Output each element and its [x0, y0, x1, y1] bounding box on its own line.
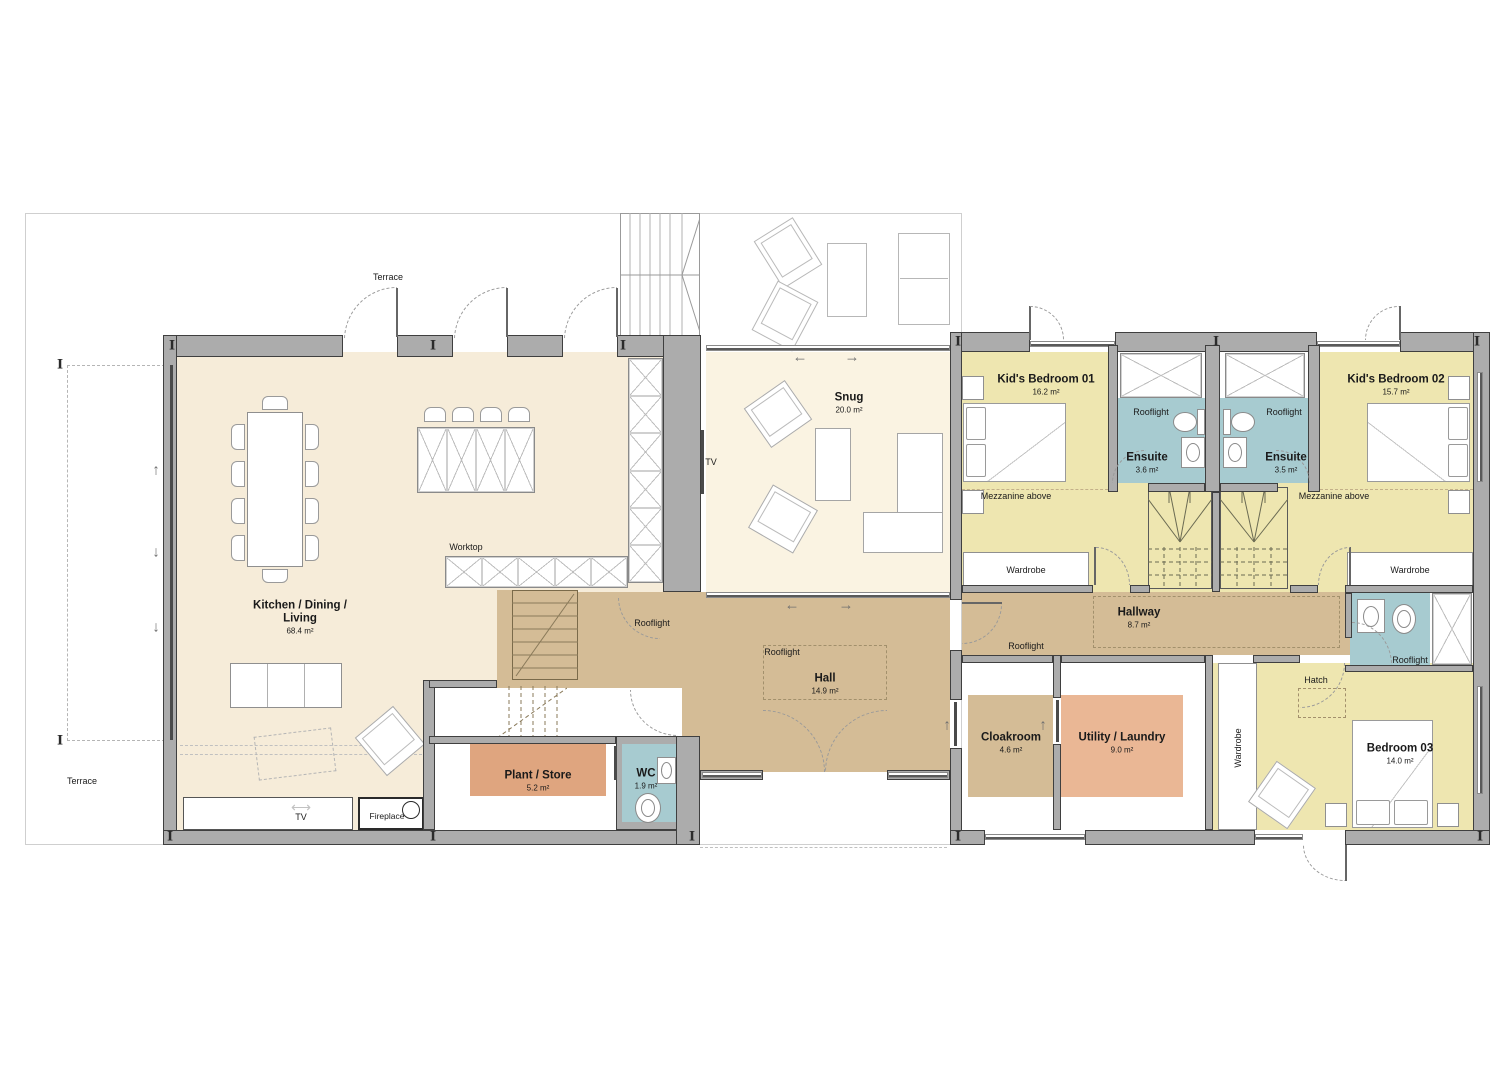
- cistern-ensuite-02: [1223, 409, 1231, 435]
- room-area: 1.9 m²: [635, 782, 658, 791]
- mezzanine-label-01: Mezzanine above: [981, 491, 1052, 501]
- pillow: [1394, 800, 1428, 825]
- bedside-shelf: [1325, 803, 1347, 827]
- room-label-snug: Snug 20.0 m²: [835, 391, 864, 414]
- wall: [1085, 830, 1255, 845]
- wall: [1212, 492, 1220, 592]
- hatch-label: Hatch: [1304, 675, 1328, 685]
- section-marker: I: [169, 340, 175, 353]
- slide-arrow-up: ↑: [152, 463, 160, 478]
- bedroom-01-window: [1030, 341, 1115, 347]
- room-area: 3.5 m²: [1265, 466, 1307, 475]
- bedroom-02-east-window: [1477, 372, 1483, 482]
- tv-label-snug: TV: [705, 457, 717, 467]
- floor-plan: ⟷: [0, 0, 1512, 1080]
- terrace-sofa: [898, 233, 950, 325]
- dining-chair: [305, 498, 319, 524]
- utility-pocket-door: [1056, 700, 1059, 742]
- basin-ensuite-01: [1181, 437, 1205, 468]
- worktop-horizontal: [445, 556, 628, 588]
- dining-table: [247, 412, 303, 567]
- basin-ensuite-02: [1223, 437, 1247, 468]
- dining-chair: [231, 535, 245, 561]
- room-name: Plant / Store: [504, 769, 571, 782]
- room-area: 68.4 m²: [238, 627, 362, 636]
- room-area: 20.0 m²: [835, 406, 864, 415]
- wall: [507, 335, 563, 357]
- section-marker: I: [955, 831, 961, 844]
- entrance-side-window: [888, 772, 948, 778]
- wardrobe-label-03: Wardrobe: [1233, 728, 1243, 767]
- wall: [429, 736, 616, 744]
- section-marker: I: [430, 831, 436, 844]
- worktop-vertical: [628, 358, 663, 583]
- pillow: [966, 407, 986, 440]
- room-name: WC: [635, 767, 658, 780]
- main-stair: [512, 590, 578, 680]
- fireplace-flue: [402, 801, 420, 819]
- terrace-table: [827, 243, 867, 317]
- slide-arrow-left: ←: [785, 598, 800, 613]
- wall: [1345, 830, 1490, 845]
- wall: [163, 335, 343, 357]
- room-area: 3.6 m²: [1126, 466, 1168, 475]
- cistern-ensuite-01: [1197, 409, 1205, 435]
- door-swing: [1303, 845, 1345, 881]
- dining-chair: [305, 424, 319, 450]
- room-area: 16.2 m²: [997, 388, 1094, 397]
- wall: [423, 680, 435, 830]
- door-swing: [1030, 306, 1064, 340]
- toilet-bathroom-03: [1392, 604, 1416, 634]
- room-label-bedroom-03: Bedroom 03 14.0 m²: [1367, 742, 1433, 765]
- wall: [1061, 655, 1205, 663]
- section-marker: I: [620, 340, 626, 353]
- room-label-kids-bedroom-01: Kid's Bedroom 01 16.2 m²: [997, 373, 1094, 396]
- section-marker: I: [955, 336, 961, 349]
- wall: [1053, 744, 1061, 830]
- fireplace-label: Fireplace: [370, 811, 405, 821]
- entrance-door-swing-left: [763, 710, 825, 772]
- section-marker: I: [57, 735, 63, 748]
- dining-chair: [231, 424, 245, 450]
- door-swing: [454, 287, 507, 340]
- room-label-ensuite-01: Ensuite 3.6 m²: [1126, 451, 1168, 474]
- bedroom-02-window: [1317, 341, 1400, 347]
- slide-arrow-right: →: [839, 598, 854, 613]
- mezzanine-stair-2: [1220, 487, 1288, 589]
- tv-label-living: TV: [295, 812, 307, 822]
- section-marker: I: [1477, 831, 1483, 844]
- toilet-wc: [635, 793, 661, 823]
- dining-chair: [231, 498, 245, 524]
- bar-stool: [508, 407, 530, 422]
- slide-arrow-up: ↑: [1039, 718, 1047, 733]
- room-label-hall: Hall 14.9 m²: [811, 672, 838, 695]
- room-name: Ensuite: [1126, 451, 1168, 464]
- wall: [1148, 483, 1205, 492]
- section-marker: I: [1474, 336, 1480, 349]
- bedroom-03-east-window: [1477, 686, 1483, 794]
- bedside-shelf: [1448, 376, 1470, 400]
- living-sofa: [230, 663, 342, 708]
- dining-chair: [305, 461, 319, 487]
- bedroom-03-window: [1255, 834, 1303, 840]
- bar-stool: [452, 407, 474, 422]
- door-swing: [564, 287, 617, 340]
- mezzanine-label-02: Mezzanine above: [1299, 491, 1370, 501]
- bedside-shelf: [1437, 803, 1459, 827]
- pillow: [1448, 444, 1468, 477]
- door-swing: [630, 690, 678, 736]
- door-swing: [1300, 663, 1345, 708]
- room-name: Kid's Bedroom 02: [1347, 373, 1444, 386]
- cloakroom-pocket-door: [954, 702, 957, 746]
- wall: [397, 335, 453, 357]
- snug-tv: [701, 430, 704, 494]
- rooflight-label-ensuite-02: Rooflight: [1266, 407, 1302, 417]
- terrace-label-left: Terrace: [67, 776, 97, 786]
- room-label-ensuite-02: Ensuite 3.5 m²: [1265, 451, 1307, 474]
- pillow: [1448, 407, 1468, 440]
- slide-arrow-right: →: [845, 350, 860, 365]
- dining-chair: [262, 569, 288, 583]
- wall: [1205, 345, 1220, 492]
- section-marker: I: [167, 831, 173, 844]
- rooflight-label-hall-stair: Rooflight: [634, 618, 670, 628]
- wall: [1345, 593, 1352, 638]
- kitchen-island: [417, 427, 535, 493]
- wall: [962, 655, 1053, 663]
- wall: [950, 332, 1030, 352]
- room-name: Snug: [835, 391, 864, 404]
- wardrobe-label-02: Wardrobe: [1390, 565, 1429, 575]
- dining-chair: [262, 396, 288, 410]
- snug-corner-sofa-short: [863, 512, 943, 553]
- dining-chair: [305, 535, 319, 561]
- room-area: 14.9 m²: [811, 687, 838, 696]
- bedside-shelf: [1448, 490, 1470, 514]
- room-name: Hall: [811, 672, 838, 685]
- section-marker: I: [689, 831, 695, 844]
- room-name: Kitchen / Dining / Living: [238, 600, 362, 626]
- wall: [950, 332, 962, 600]
- door-leaf: [1399, 306, 1401, 340]
- room-area: 9.0 m²: [1079, 746, 1166, 755]
- worktop-label: Worktop: [449, 542, 482, 552]
- toilet-ensuite-02: [1231, 412, 1255, 432]
- bedside-shelf: [962, 376, 984, 400]
- door-swing: [962, 604, 1002, 644]
- dining-chair: [231, 461, 245, 487]
- door-swing: [1318, 547, 1350, 585]
- toilet-ensuite-01: [1173, 412, 1197, 432]
- basin-wc: [657, 757, 676, 784]
- room-name: Bedroom 03: [1367, 742, 1433, 755]
- wardrobe-label-01: Wardrobe: [1006, 565, 1045, 575]
- door-swing: [1352, 622, 1392, 665]
- main-stair-below-cut: [497, 686, 567, 740]
- room-label-wc: WC 1.9 m²: [635, 767, 658, 790]
- room-label-cloakroom: Cloakroom 4.6 m²: [981, 731, 1041, 754]
- room-label-kids-bedroom-02: Kid's Bedroom 02 15.7 m²: [1347, 373, 1444, 396]
- entrance-door-swing-right: [825, 710, 887, 772]
- rooflight-label-hallway: Rooflight: [1008, 641, 1044, 651]
- wall: [1345, 665, 1473, 672]
- room-area: 5.2 m²: [504, 784, 571, 793]
- bar-stool: [424, 407, 446, 422]
- room-area: 14.0 m²: [1367, 757, 1433, 766]
- room-area: 4.6 m²: [981, 746, 1041, 755]
- slide-arrow-down: ↓: [152, 620, 160, 635]
- door-swing: [1096, 547, 1130, 585]
- wall: [1345, 585, 1473, 593]
- rooflight-label-hall: Rooflight: [764, 647, 800, 657]
- wall: [1220, 483, 1278, 492]
- section-marker: I: [57, 359, 63, 372]
- wall: [1205, 655, 1213, 830]
- room-label-utility: Utility / Laundry 9.0 m²: [1079, 731, 1166, 754]
- wall: [1290, 585, 1318, 593]
- section-marker: I: [430, 340, 436, 353]
- wall: [962, 585, 1093, 593]
- wall: [1053, 655, 1061, 698]
- section-marker: I: [1213, 336, 1219, 349]
- wall: [429, 680, 497, 688]
- pillow: [1356, 800, 1390, 825]
- bar-stool: [480, 407, 502, 422]
- rooflight-label-bathroom-03: Rooflight: [1392, 655, 1428, 665]
- room-name: Hallway: [1118, 606, 1161, 619]
- room-name: Utility / Laundry: [1079, 731, 1166, 744]
- wc-pocket-door: [614, 746, 617, 780]
- snug-north-glazing: [706, 345, 950, 351]
- snug-south-glazing: [706, 592, 950, 598]
- tv-recess: [183, 797, 353, 830]
- external-stair: [620, 213, 700, 338]
- entrance-canopy-line: [700, 847, 947, 848]
- slide-arrow-down: ↓: [152, 545, 160, 560]
- door-swing: [1365, 306, 1399, 340]
- wall: [1130, 585, 1150, 593]
- utility-window: [985, 834, 1085, 840]
- pillow: [966, 444, 986, 477]
- wall: [950, 650, 962, 700]
- room-label-kitchen: Kitchen / Dining / Living 68.4 m²: [238, 600, 362, 637]
- room-name: Kid's Bedroom 01: [997, 373, 1094, 386]
- entrance-side-window: [702, 772, 762, 778]
- slide-arrow-left: ←: [793, 350, 808, 365]
- room-label-hallway: Hallway 8.7 m²: [1118, 606, 1161, 629]
- shower-bathroom-03: [1432, 593, 1472, 665]
- room-name: Cloakroom: [981, 731, 1041, 744]
- mezzanine-stair-1: [1148, 487, 1212, 589]
- door-swing: [344, 287, 397, 340]
- room-area: 15.7 m²: [1347, 388, 1444, 397]
- room-label-plant-store: Plant / Store 5.2 m²: [504, 769, 571, 792]
- terrace-label-top: Terrace: [373, 272, 403, 282]
- sliding-glazing-west: [170, 365, 173, 740]
- wall: [1253, 655, 1300, 663]
- terrace-sofa-line: [900, 278, 948, 279]
- room-area: 8.7 m²: [1118, 621, 1161, 630]
- rooflight-label-ensuite-01: Rooflight: [1133, 407, 1169, 417]
- wall-kitchen-snug-divider: [663, 335, 701, 592]
- slide-arrow-up: ↑: [943, 718, 951, 733]
- door-leaf: [1345, 845, 1347, 881]
- room-name: Ensuite: [1265, 451, 1307, 464]
- snug-coffee-table: [815, 428, 851, 501]
- shower-ensuite-02: [1225, 353, 1305, 398]
- shower-ensuite-01: [1120, 353, 1202, 398]
